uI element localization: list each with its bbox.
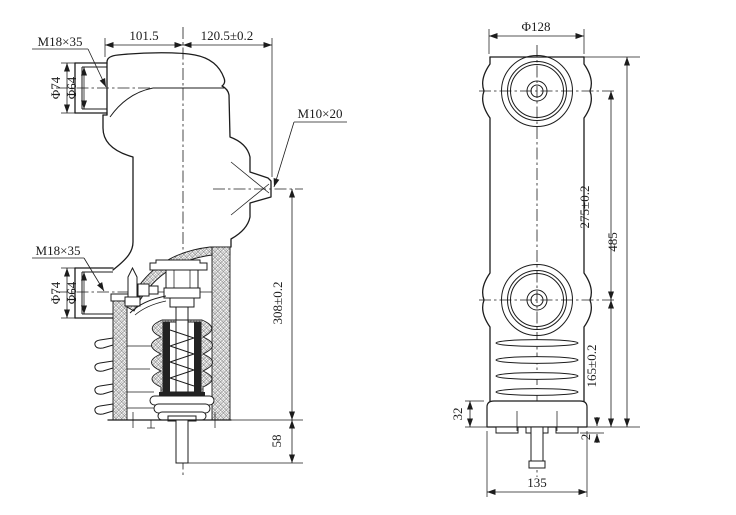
dim-width-right-label: 120.5±0.2	[201, 28, 254, 43]
dim-side-heights: 308±0.2 58	[269, 189, 292, 463]
dim-lower-section-label: 165±0.2	[584, 345, 599, 388]
dim-flange-height-label: 32	[450, 408, 465, 421]
dim-flange-height: 32	[450, 401, 487, 427]
dim-width-left-label: 101.5	[129, 28, 158, 43]
hatched-left-wall	[113, 301, 127, 420]
leader-line	[84, 258, 104, 291]
base-flange	[487, 401, 587, 427]
dia-inner-upper-label: Φ64	[64, 76, 79, 99]
dia-outer-lower-label: Φ74	[48, 281, 63, 304]
callout-side-thread: M10×20	[274, 106, 347, 187]
operating-stem	[531, 427, 543, 461]
dim-lower-boss: Φ74 Φ64	[48, 268, 84, 318]
body-left-edge	[483, 57, 490, 401]
clamp-nut	[164, 288, 200, 298]
body-outline-left	[103, 115, 133, 270]
drawing-sheet: 101.5 120.5±0.2 M18×35 Φ74 Φ64 M18×35	[0, 0, 736, 515]
dim-total-height-label: 485	[605, 232, 620, 252]
thread-side-label: M10×20	[298, 106, 343, 121]
thread-lower-label: M18×35	[36, 243, 81, 258]
dia-top-label: Φ128	[521, 19, 550, 34]
stem-tip	[529, 461, 545, 468]
hatched-right-wall	[212, 247, 230, 420]
front-view: Φ128 275±0.2 165±0.2 485 32 2	[450, 19, 640, 497]
left-wall-fins	[95, 338, 113, 414]
dim-stem-label: 58	[269, 435, 284, 448]
dim-upper-boss: Φ74 Φ64	[48, 63, 84, 113]
operating-stem	[176, 420, 188, 463]
lower-terminal-boss	[75, 268, 113, 318]
moving-stem-rod	[176, 320, 188, 392]
dim-base-width-label: 135	[527, 475, 547, 490]
terminal-bolt-seat	[125, 297, 140, 306]
leader-line	[274, 122, 294, 187]
dim-top-diameter: Φ128	[489, 19, 584, 54]
body-outline-top-right	[107, 53, 271, 247]
thread-upper-label: M18×35	[38, 34, 83, 49]
channel-wall-right	[194, 322, 201, 392]
dim-top-widths: 101.5 120.5±0.2	[105, 28, 272, 177]
channel-wall-left	[163, 322, 170, 392]
lower-bellows	[150, 396, 214, 421]
side-bolt	[138, 284, 149, 296]
dia-inner-lower-label: Φ64	[64, 281, 79, 304]
terminal-bolt	[128, 268, 137, 297]
dim-foot-step-label: 2	[578, 434, 593, 441]
dim-centers-label: 275±0.2	[577, 186, 592, 229]
contact-clamp-assembly	[138, 260, 207, 320]
dim-height-label: 308±0.2	[270, 282, 285, 325]
inner-fillet-curve	[110, 88, 153, 117]
side-sectional-view: 101.5 120.5±0.2 M18×35 Φ74 Φ64 M18×35	[32, 27, 347, 477]
technical-drawing: 101.5 120.5±0.2 M18×35 Φ74 Φ64 M18×35	[0, 0, 736, 515]
dia-outer-upper-label: Φ74	[48, 76, 63, 99]
leader-line	[88, 49, 106, 87]
